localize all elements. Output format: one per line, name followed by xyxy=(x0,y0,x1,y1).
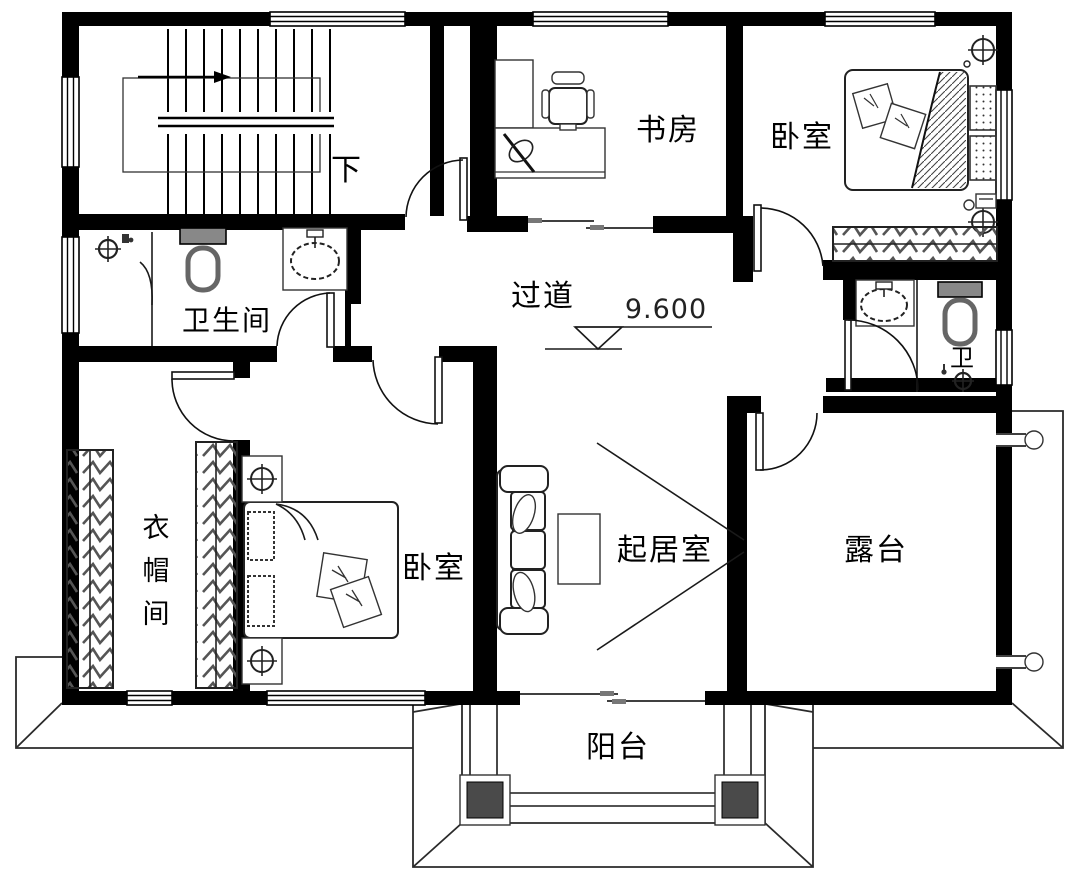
window xyxy=(533,12,668,26)
balcony-structure xyxy=(413,703,813,867)
doors xyxy=(172,158,918,470)
coffee-table xyxy=(558,514,600,584)
window xyxy=(825,12,935,26)
shower-icon xyxy=(95,234,133,262)
desk xyxy=(495,128,605,178)
room-label-hallway: 过道 xyxy=(511,279,575,314)
toilet-icon xyxy=(180,228,226,290)
door-closet xyxy=(172,372,234,441)
toilet-icon xyxy=(938,282,982,344)
staircase xyxy=(123,29,334,214)
door-bedroom-main xyxy=(373,357,442,424)
room-label-stairs-down: 下 xyxy=(331,153,363,188)
stair-direction-arrow xyxy=(138,71,231,83)
tv-icon xyxy=(964,194,996,210)
window xyxy=(62,77,79,167)
nightstand xyxy=(970,136,996,180)
window xyxy=(127,691,172,705)
room-label-terrace: 露台 xyxy=(844,533,908,568)
sofa xyxy=(497,466,548,634)
window xyxy=(267,691,425,705)
window xyxy=(996,90,1012,200)
door-bedroom-top xyxy=(754,205,823,271)
room-label-bathroom-small: 卫 xyxy=(950,344,974,372)
sliding-door-study xyxy=(528,218,653,230)
nightstand xyxy=(970,86,996,130)
terrace-scupper xyxy=(996,431,1043,449)
room-label-living-room: 起居室 xyxy=(617,533,713,568)
room-label-closet-char2: 帽 xyxy=(143,556,172,587)
bathroom-small-fixtures xyxy=(856,280,982,392)
door-terrace xyxy=(756,413,817,470)
nightstand xyxy=(242,638,282,684)
study-furniture xyxy=(495,60,605,178)
floor-plan-canvas: 9.600 下 卫生间 书房 卧室 过道 卫 衣 帽 间 卧室 起居室 露台 阳… xyxy=(0,0,1080,882)
balcony-column-right xyxy=(715,775,765,825)
bedroom-main-furniture xyxy=(242,456,398,684)
washbasin-icon xyxy=(856,280,914,326)
window xyxy=(62,237,79,333)
room-label-balcony: 阳台 xyxy=(586,730,650,765)
window xyxy=(270,12,405,26)
room-label-closet-char3: 间 xyxy=(143,599,172,630)
office-chair-icon xyxy=(542,72,594,130)
room-label-bedroom-top: 卧室 xyxy=(770,120,834,155)
bookshelf xyxy=(495,60,533,128)
window xyxy=(996,330,1012,385)
door-bathroom-main xyxy=(277,293,334,347)
room-label-bedroom-main: 卧室 xyxy=(402,551,466,586)
bedroom-top-furniture xyxy=(833,35,998,261)
room-label-closet-char1: 衣 xyxy=(143,513,172,544)
pillow xyxy=(248,576,274,626)
room-label-bathroom-main: 卫生间 xyxy=(182,304,272,337)
ceiling-lamp-icon xyxy=(964,35,998,67)
room-label-study: 书房 xyxy=(636,113,700,148)
sliding-door-balcony xyxy=(520,691,705,705)
nightstand xyxy=(242,456,282,502)
balcony-column-left xyxy=(460,775,510,825)
washbasin-icon xyxy=(283,228,347,290)
pillow xyxy=(248,512,274,560)
floor-plan-page: 9.600 下 卫生间 书房 卧室 过道 卫 衣 帽 间 卧室 起居室 露台 阳… xyxy=(0,0,1080,882)
elevation-value: 9.600 xyxy=(625,294,707,325)
terrace-scupper xyxy=(996,653,1043,671)
